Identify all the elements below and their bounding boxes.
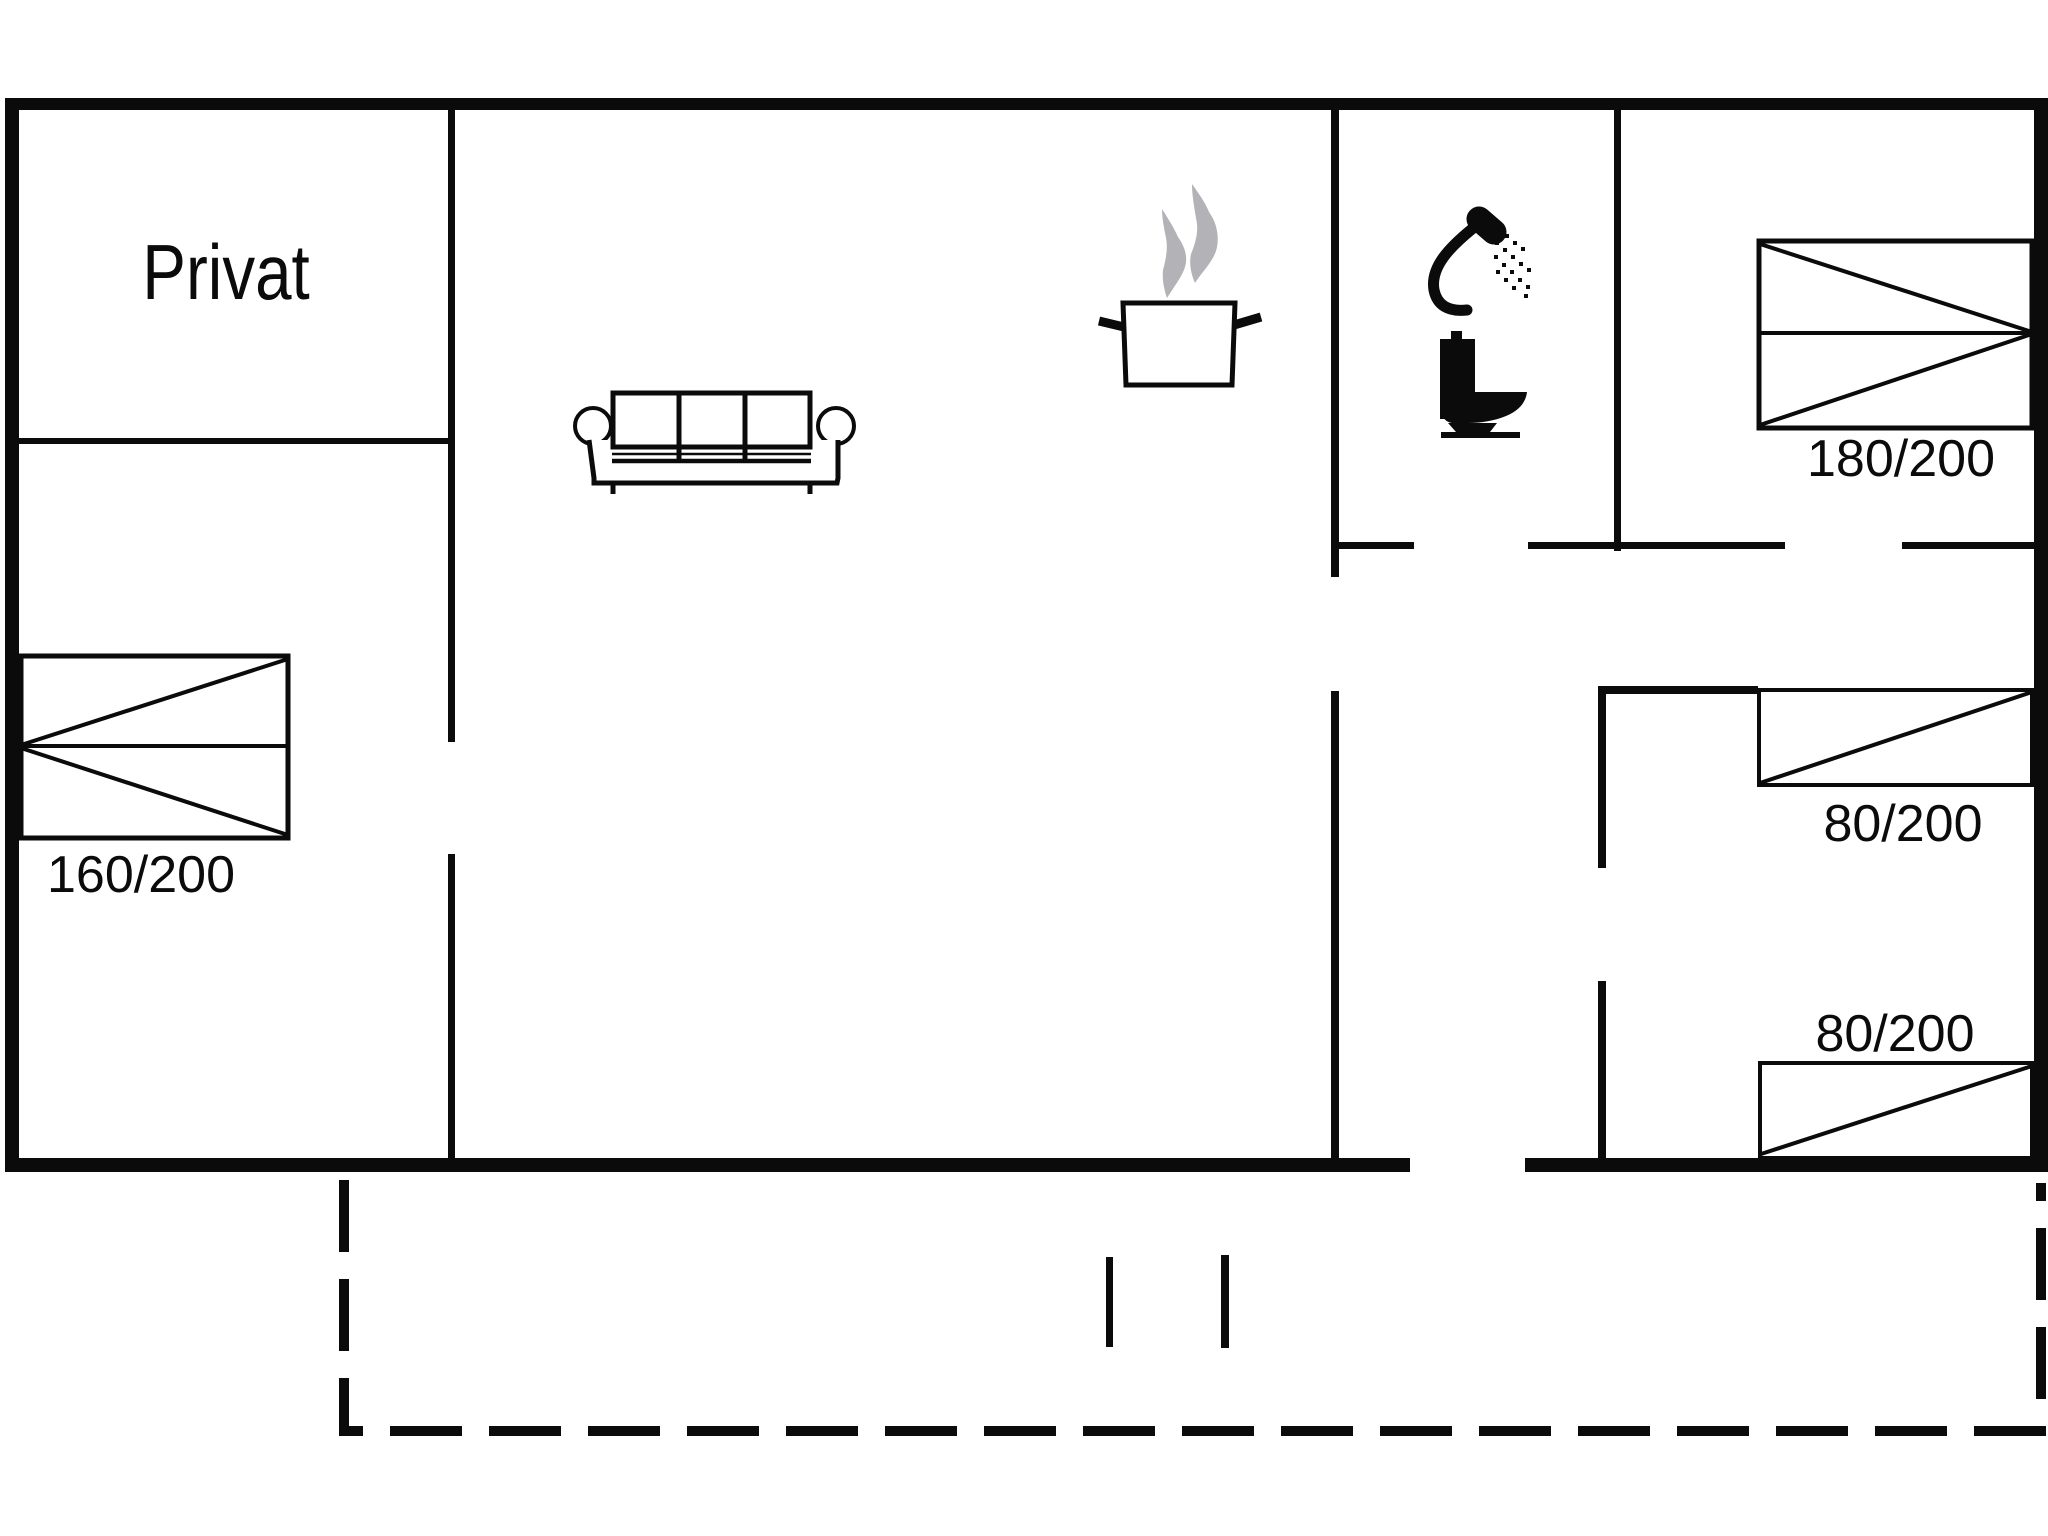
svg-text:Privat: Privat (142, 230, 309, 317)
svg-text:180/200: 180/200 (1807, 430, 1995, 488)
svg-text:80/200: 80/200 (1815, 1005, 1974, 1063)
svg-text:80/200: 80/200 (1823, 795, 1982, 853)
svg-text:160/200: 160/200 (47, 846, 235, 904)
